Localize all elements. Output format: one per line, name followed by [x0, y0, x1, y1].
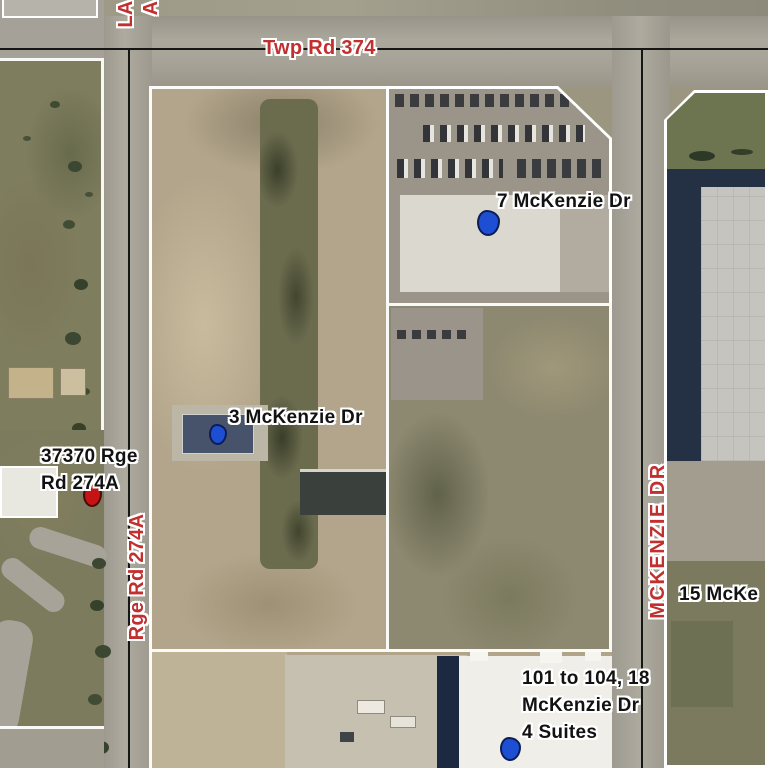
parking-row-middle	[397, 330, 471, 339]
driveway-arc-3	[0, 617, 36, 739]
parking-row-3a	[397, 159, 503, 178]
label-suites-line3: 4 Suites	[522, 720, 650, 747]
roof-vent-1	[470, 652, 488, 661]
building-top-left	[2, 0, 98, 18]
pavement-right	[667, 461, 765, 561]
label-37370-rge-rd: 37370 Rge Rd 274A	[41, 444, 138, 498]
pad-middle	[391, 308, 483, 400]
label-rge-rd-274a: Rge Rd 274A	[123, 514, 151, 641]
label-partial-street-line2: A	[137, 1, 165, 16]
parking-row-1	[395, 94, 607, 107]
truck-2	[390, 716, 416, 728]
trees-right	[689, 151, 715, 161]
green-strip-right	[667, 93, 765, 173]
building-dark-shop	[300, 469, 388, 515]
trees-left-field	[68, 161, 82, 172]
warehouse-roof	[701, 187, 765, 461]
road-rge-rd-274a	[102, 16, 152, 768]
parking-row-3b	[517, 159, 603, 178]
label-twp-rd-374: Twp Rd 374	[263, 34, 376, 62]
parcel-right-fill	[667, 93, 765, 765]
building-tan-2	[60, 368, 86, 396]
roof-vent-3	[585, 652, 601, 661]
building-tan-1	[8, 367, 54, 399]
pavement-bottom-left	[0, 729, 104, 768]
section-line-horizontal	[0, 48, 768, 50]
building-18-mckenzie-edge	[437, 656, 459, 768]
roof-vent-2	[540, 652, 562, 663]
driveway-arc-2	[0, 554, 69, 617]
warehouse-roof-edge-left	[667, 169, 703, 461]
dark-bin	[340, 732, 354, 742]
label-suites-line2: McKenzie Dr	[522, 693, 650, 720]
label-37370-line2: Rd 274A	[41, 471, 138, 498]
parcel-left-field	[0, 58, 104, 430]
parcel-right	[664, 90, 768, 768]
parking-row-2	[423, 125, 585, 142]
trees-left-south	[92, 558, 106, 569]
parcel-middle-scrub	[386, 303, 612, 652]
truck-1	[357, 700, 385, 714]
label-suites-line1: 101 to 104, 18	[522, 666, 650, 693]
parcel-3-mckenzie	[149, 86, 390, 652]
label-15-mckenzie-partial: 15 McKe	[679, 582, 758, 609]
section-line-vertical-west	[128, 49, 130, 768]
aerial-map[interactable]: Twp Rd 374 LA A Rge Rd 274A MCKENZIE DR …	[0, 0, 768, 768]
section-line-vertical-east	[641, 49, 643, 768]
label-101-104-18-mckenzie: 101 to 104, 18 McKenzie Dr 4 Suites	[522, 666, 650, 747]
label-3-mckenzie: 3 McKenzie Dr	[229, 405, 363, 432]
label-mckenzie-dr-road: MCKENZIE DR	[644, 463, 672, 618]
label-7-mckenzie: 7 McKenzie Dr	[497, 189, 631, 216]
label-37370-line1: 37370 Rge	[41, 444, 138, 471]
dirt-bottom-left	[152, 652, 287, 768]
field-pad-right	[671, 621, 733, 707]
